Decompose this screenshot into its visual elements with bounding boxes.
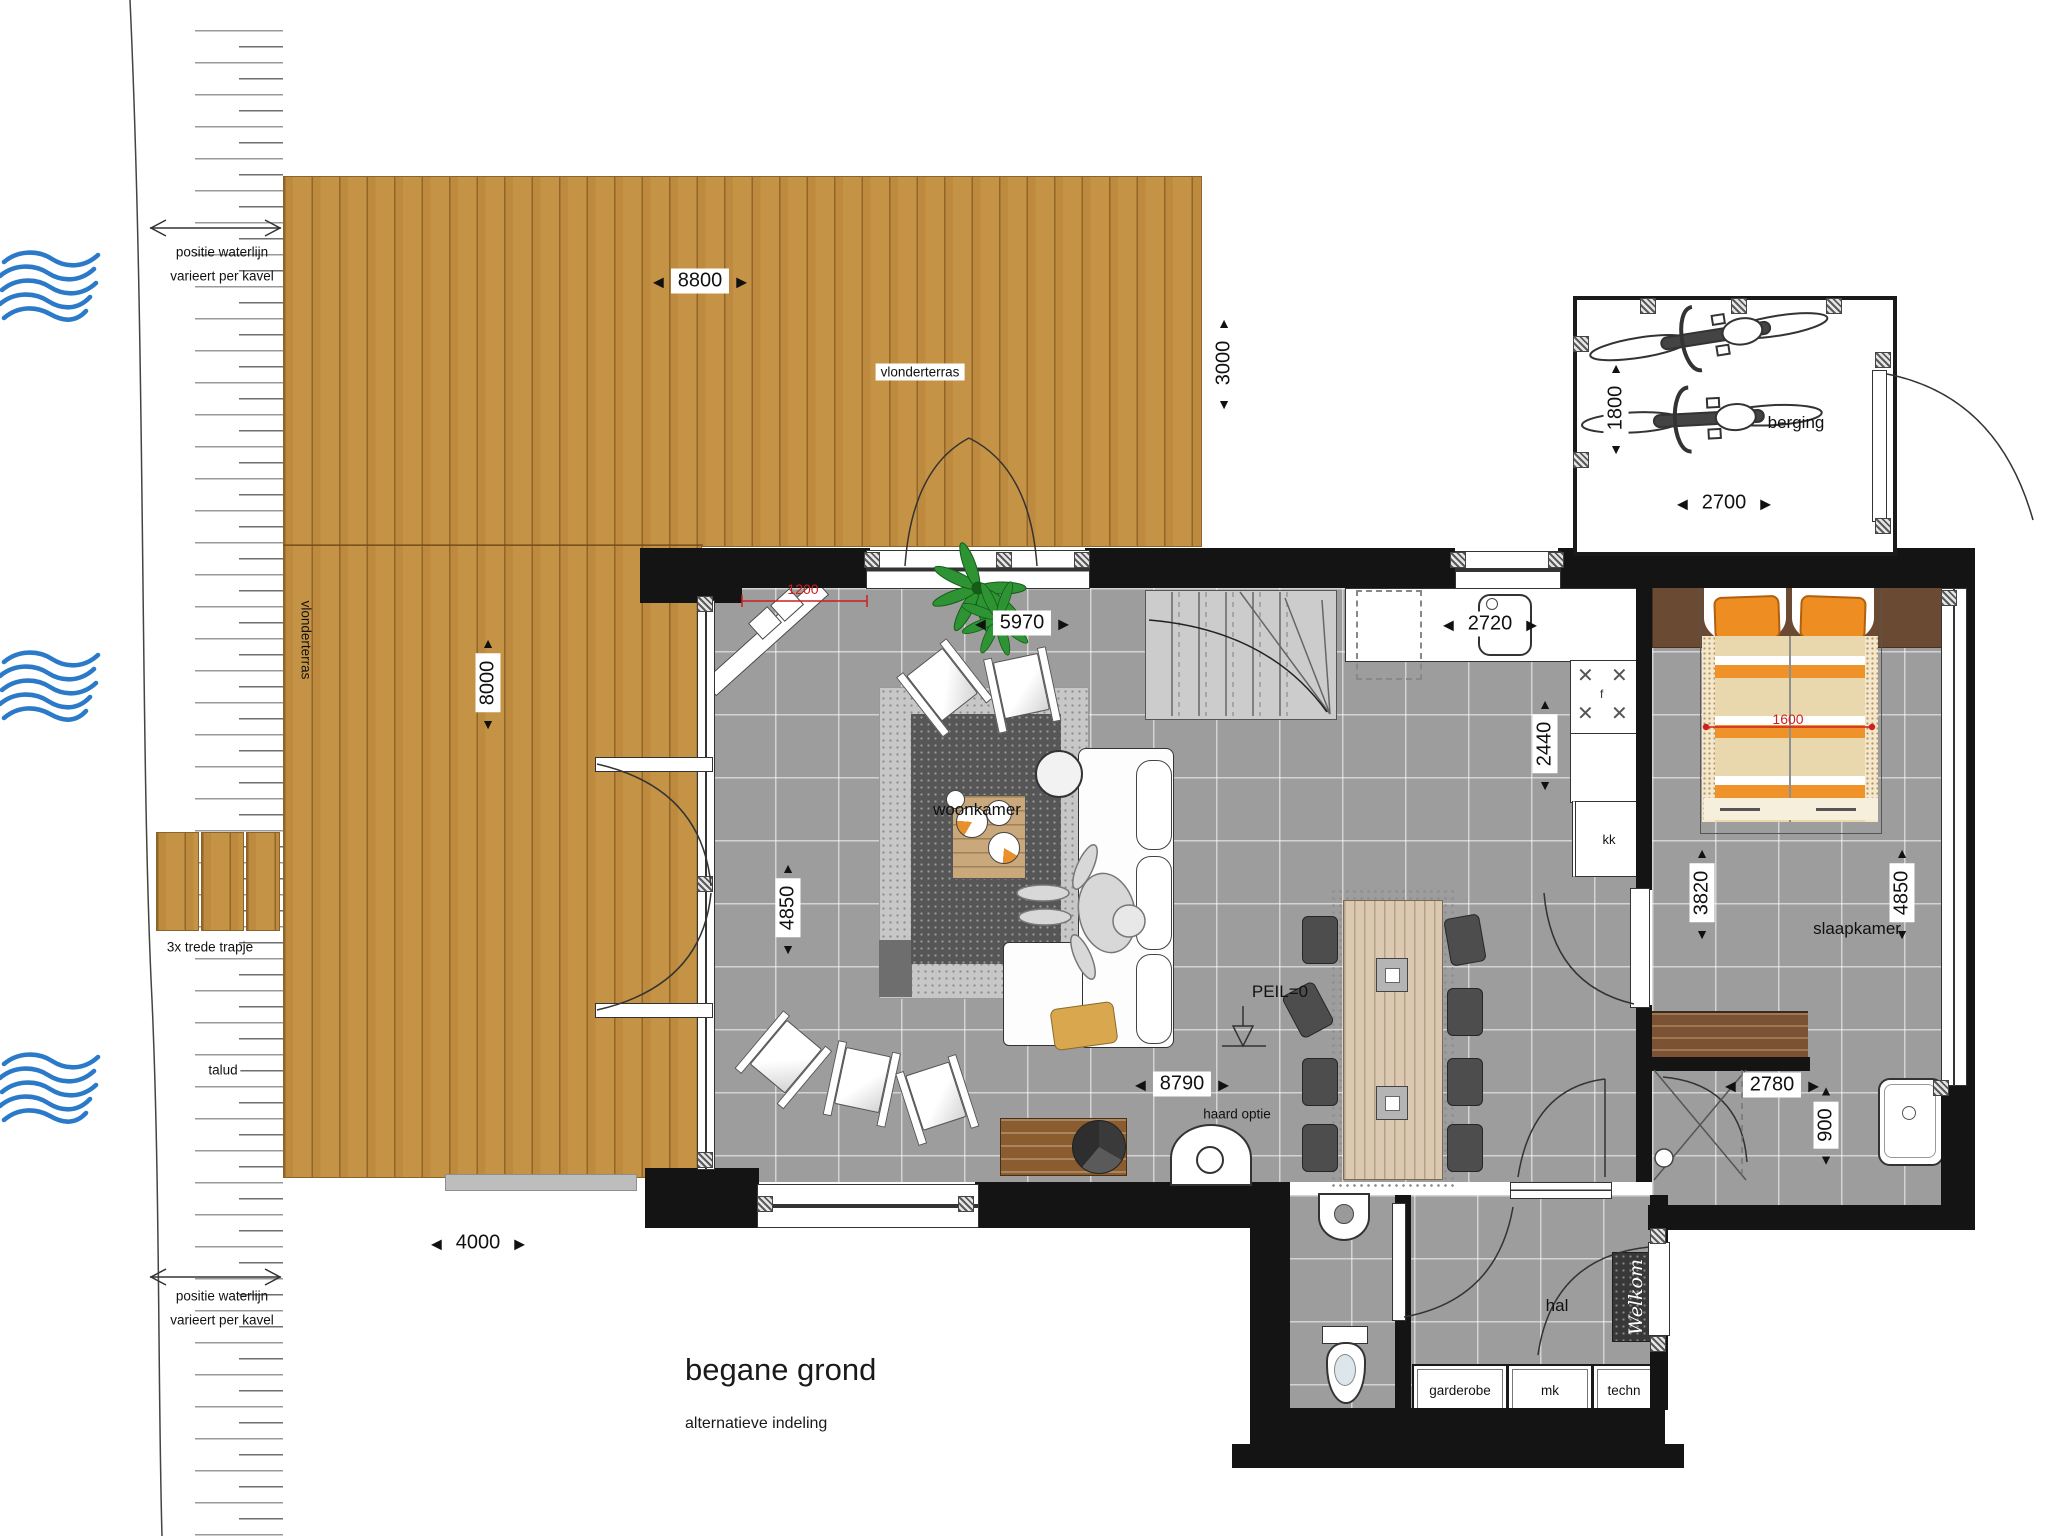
arrow-left-icon: ◀ [653, 274, 664, 288]
wall-corner-sw [645, 1168, 759, 1228]
arrow-left-icon: ◀ [975, 616, 986, 630]
floor-plan-canvas: ✕ ✕ ✕ ✕ f kk Welkom garderobe mk techn [0, 0, 2048, 1536]
arrow-down-icon: ▼ [1609, 441, 1623, 455]
arrow-down-icon: ▼ [781, 941, 795, 955]
arrow-down-icon: ▼ [481, 716, 495, 730]
candle-center [1385, 1096, 1400, 1111]
sink-tap-icon [1486, 598, 1498, 610]
fireplace-flue-icon [1196, 1146, 1224, 1174]
dim-kitchen-width: ◀ 2720 ▶ [1443, 612, 1537, 637]
arrow-left-icon: ◀ [1725, 1078, 1736, 1092]
dishwasher-dashed [1356, 590, 1422, 680]
dining-chair [1447, 988, 1483, 1036]
water-waves-icon [0, 1055, 98, 1122]
dim-bath: ▲ 900 ▼ [1814, 1083, 1839, 1166]
dim-living-height: ▲ 4850 ▼ [776, 861, 801, 956]
wall-hatch [1074, 552, 1090, 568]
waterline-note-bottom-1: positie waterlijn [176, 1289, 268, 1304]
doormat-label: Welkom [1625, 1259, 1647, 1335]
door-leaf-west-upper [595, 757, 713, 772]
wall-hall-bottom [1250, 1408, 1665, 1444]
steps-label: 3x trede trapje [167, 940, 253, 955]
door-hall-interior-leaf [1392, 1203, 1406, 1321]
sofa-back-cushion [1136, 954, 1172, 1044]
dim-bedroom-left: ▲ 3820 ▼ [1690, 846, 1715, 941]
arrow-up-icon: ▲ [1609, 361, 1623, 375]
wall-right-of-dining [1636, 1005, 1652, 1182]
arrow-up-icon: ▲ [1819, 1083, 1833, 1097]
candle-center [1385, 968, 1400, 983]
fireplace-label: haard optie [1203, 1107, 1271, 1122]
deck-seam-line [283, 544, 703, 546]
wall-hatch [1573, 452, 1589, 468]
dim-living-south: ◀ 8790 ▶ [1135, 1072, 1229, 1097]
door-leaf-west-lower [595, 1003, 713, 1018]
dim-door-red: 1200 [787, 581, 818, 597]
staircase [1145, 590, 1337, 720]
wall-hatch [864, 552, 880, 568]
rug-corner-dark [879, 940, 912, 997]
wall-bedroom-right-outer-line [1967, 548, 1975, 1098]
arrow-up-icon: ▲ [1695, 846, 1709, 860]
dim-kitchen-depth: ▲ 2440 ▼ [1533, 697, 1558, 792]
page-subtitle: alternatieve indeling [685, 1415, 827, 1433]
dim-living-width: ◀ 5970 ▶ [975, 611, 1069, 636]
sofa-back-cushion [1136, 760, 1172, 850]
wall-hatch [1875, 352, 1891, 368]
shore-step-2 [201, 832, 244, 931]
arrow-up-icon: ▲ [481, 636, 495, 650]
wall-hatch [1450, 552, 1466, 568]
arrow-right-icon: ▶ [1526, 617, 1537, 631]
arrow-up-icon: ▲ [1217, 316, 1231, 330]
wall-hatch [1731, 298, 1747, 314]
dim-deck-north-strip: ▲ 3000 ▼ [1212, 316, 1237, 411]
toilet-seat [1334, 1354, 1356, 1386]
dining-chair [1302, 1058, 1338, 1106]
page-title: begane grond [685, 1352, 876, 1388]
arrow-right-icon: ▶ [1218, 1077, 1229, 1091]
arrow-left-icon: ◀ [1677, 496, 1688, 510]
burner-icon: ✕ [1577, 701, 1594, 726]
arrow-down-icon: ▼ [1895, 926, 1909, 940]
talud-label: talud [205, 1063, 240, 1078]
dim-berging-width: ◀ 2700 ▶ [1677, 491, 1771, 516]
sofa-pillow [1049, 1001, 1118, 1051]
datum-label: PEIL=0 [1252, 982, 1308, 1002]
wall-hatch [697, 596, 713, 612]
deck-label-top: vlonderterras [876, 364, 965, 381]
burner-icon: ✕ [1611, 663, 1628, 688]
wall-hatch [1650, 1336, 1666, 1352]
cabinet-label: mk [1541, 1383, 1559, 1398]
wall-hatch [1548, 552, 1564, 568]
dim-deck-width: ◀ 8800 ▶ [653, 269, 747, 294]
arrow-right-icon: ▶ [1760, 496, 1771, 510]
plate-icon [988, 832, 1020, 864]
dim-berging-bikes: ▲ 1800 ▼ [1604, 361, 1629, 456]
berging-label: berging [1768, 413, 1825, 433]
window-living-south [757, 1184, 979, 1228]
water-waves-icon [0, 653, 98, 720]
arrow-down-icon: ▼ [1695, 926, 1709, 940]
wall-hatch [1875, 518, 1891, 534]
wall-hatch [757, 1196, 773, 1212]
arrow-up-icon: ▲ [1895, 846, 1909, 860]
dining-chair [1302, 916, 1338, 964]
wall-bedroom-bottom [1648, 1205, 1975, 1230]
window-kitchen-north [1455, 551, 1561, 589]
cabinet-label: garderobe [1429, 1383, 1491, 1398]
dining-chair [1447, 1058, 1483, 1106]
wall-hall-bottom-step [1232, 1444, 1684, 1468]
wall-hatch [1640, 298, 1656, 314]
dim-deck-height: ▲ 8000 ▼ [476, 636, 501, 731]
wall-top-b [1085, 548, 1455, 588]
table-candle [1376, 958, 1408, 992]
wall-hatch [1933, 1080, 1949, 1096]
bedroom-desk [1652, 1011, 1808, 1059]
wall-hatch [1650, 1228, 1666, 1244]
table-candle [1376, 1086, 1408, 1120]
arrow-down-icon: ▼ [1217, 396, 1231, 410]
door-living-bedroom [1630, 888, 1650, 1008]
washbasin-bowl [1334, 1204, 1354, 1224]
dim-bedroom-south: ◀ 2780 ▶ [1725, 1073, 1819, 1098]
waterline-note-bottom-2: varieert per kavel [170, 1313, 274, 1328]
wall-bedroom-right-lower [1941, 1082, 1975, 1212]
arrow-down-icon: ▼ [1538, 777, 1552, 791]
fridge-unit: kk [1572, 801, 1643, 877]
burner-icon: ✕ [1611, 701, 1628, 726]
dining-chair [1447, 1124, 1483, 1172]
wall-right-of-kitchen [1636, 588, 1652, 890]
bathtub-inner [1884, 1084, 1936, 1158]
dim-deck-south: ◀ 4000 ▶ [431, 1231, 525, 1256]
fire-bowl-icon [1072, 1120, 1126, 1174]
window-bedroom-east [1941, 588, 1967, 1086]
shore-step-3 [246, 832, 280, 931]
dining-chair [1302, 1124, 1338, 1172]
bed-frame [1700, 586, 1882, 834]
arrow-right-icon: ▶ [514, 1236, 525, 1250]
hob-label: f [1600, 687, 1603, 701]
wall-top-a-step [640, 588, 742, 603]
deck-upper [283, 176, 1202, 547]
cabinet-label: techn [1607, 1383, 1640, 1398]
arrow-up-icon: ▲ [781, 861, 795, 875]
arrow-left-icon: ◀ [431, 1236, 442, 1250]
deck-label-side: vlonderterras [299, 601, 314, 680]
arrow-left-icon: ◀ [1443, 617, 1454, 631]
wall-hatch [958, 1196, 974, 1212]
waterline-curve [130, 0, 162, 1536]
arrow-down-icon: ▼ [1819, 1153, 1833, 1167]
wall-top-a [640, 548, 870, 588]
living-room-label: woonkamer [933, 800, 1021, 820]
bedroom-label: slaapkamer [1813, 919, 1901, 939]
side-table [1035, 750, 1083, 798]
wall-toilet-left [1250, 1182, 1290, 1422]
wall-desk-back [1652, 1057, 1810, 1071]
arrow-up-icon: ▲ [1538, 697, 1552, 711]
sofa-back-cushion [1136, 856, 1172, 950]
drain-icon [1902, 1106, 1916, 1120]
wall-bottom-living [975, 1182, 1290, 1228]
waterline-note-top-1: positie waterlijn [176, 245, 268, 260]
dining-table [1343, 900, 1443, 1180]
shore-step-1 [156, 832, 199, 931]
door-front-gap [1648, 1242, 1670, 1336]
deck-threshold [445, 1174, 637, 1191]
dim-bed-red: 1600 [1772, 711, 1803, 727]
wall-hatch [1826, 298, 1842, 314]
arrow-left-icon: ◀ [1135, 1077, 1146, 1091]
wall-hatch [1941, 590, 1957, 606]
dim-bedroom-right: ▲ 4850 ▼ [1890, 846, 1915, 941]
hob-unit: ✕ ✕ ✕ ✕ f [1570, 660, 1640, 735]
window-living-north [866, 550, 1090, 589]
fridge-label: kk [1603, 832, 1616, 847]
wall-hatch [697, 876, 713, 892]
wall-hatch [996, 552, 1012, 568]
hall-label: hal [1546, 1296, 1569, 1316]
burner-icon: ✕ [1577, 663, 1594, 688]
arrow-right-icon: ▶ [1058, 616, 1069, 630]
water-waves-icon [0, 253, 98, 320]
window-hall-north [1510, 1182, 1612, 1199]
berging-door-leaf [1872, 370, 1887, 522]
wall-hatch [697, 1152, 713, 1168]
kitchen-cabinet [1570, 733, 1640, 803]
wall-hatch [1573, 336, 1589, 352]
waterline-note-top-2: varieert per kavel [170, 269, 274, 284]
arrow-right-icon: ▶ [736, 274, 747, 288]
